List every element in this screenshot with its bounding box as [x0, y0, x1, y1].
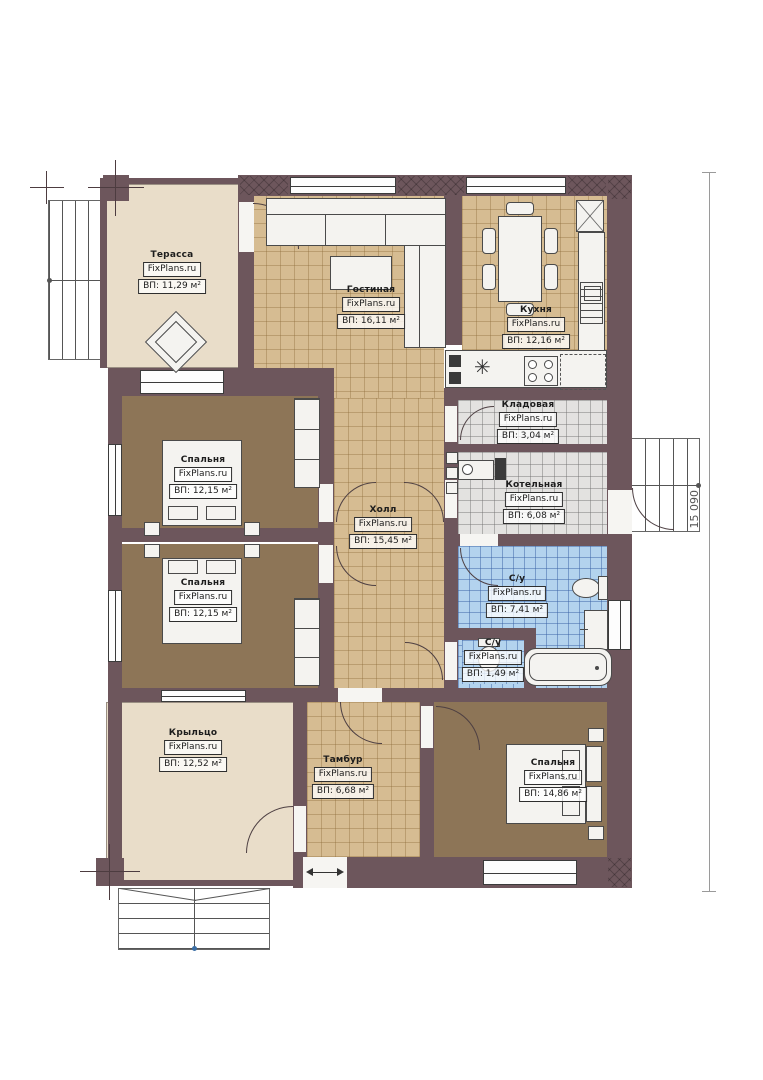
axis-marker: [109, 844, 110, 900]
room-label-porch: Крыльцо FixPlans.ru ВП: 12,52 м²: [159, 728, 227, 772]
window: [140, 370, 224, 394]
room-watermark: FixPlans.ru: [354, 517, 412, 532]
toilet-tank-icon: [598, 576, 608, 600]
nightstand-icon: [588, 728, 604, 742]
room-watermark: FixPlans.ru: [524, 770, 582, 785]
room-label-bedroom1: Спальня FixPlans.ru ВП: 12,15 м²: [169, 455, 237, 499]
sofa-icon: [266, 198, 446, 246]
room-label-kitchen: Кухня FixPlans.ru ВП: 12,16 м²: [502, 305, 570, 349]
room-name: Кладовая: [502, 400, 555, 410]
wall-corner-hatch: [608, 858, 631, 887]
room-watermark: FixPlans.ru: [143, 262, 201, 277]
stairs: [118, 888, 270, 950]
room-label-living: Гостиная FixPlans.ru ВП: 16,11 м²: [337, 285, 405, 329]
bathtub-icon: [524, 648, 612, 686]
pillow-icon: [206, 506, 236, 520]
boiler-unit-icon: [580, 282, 603, 324]
wardrobe-icon: [294, 598, 320, 686]
wall-bedrooms-right: [318, 380, 334, 690]
room-name: Терасса: [151, 250, 194, 260]
axis-marker: [103, 175, 129, 201]
gauge-icon: [462, 464, 473, 475]
nightstand-icon: [244, 544, 260, 558]
window: [161, 690, 246, 702]
window: [608, 600, 631, 650]
pillow-icon: [168, 560, 198, 574]
cabinet-icon: [449, 355, 461, 367]
room-label-wc: С/у FixPlans.ru ВП: 1,49 м²: [462, 638, 524, 682]
room-name: Кухня: [520, 305, 552, 315]
headboard-icon: [586, 786, 602, 822]
chair-icon: [506, 202, 534, 215]
electric-panel-icon: [446, 467, 458, 479]
room-label-bedroom3: Спальня FixPlans.ru ВП: 14,86 м²: [519, 758, 587, 802]
wardrobe-icon: [294, 398, 320, 488]
room-name: Котельная: [505, 480, 562, 490]
axis-marker: [96, 858, 124, 886]
cabinet-icon: [449, 372, 461, 384]
room-area: ВП: 14,86 м²: [519, 787, 587, 802]
door-opening: [608, 490, 632, 534]
room-area: ВП: 3,04 м²: [497, 429, 559, 444]
dimension-tick: [702, 172, 716, 173]
room-name: Спальня: [181, 578, 226, 588]
window: [108, 444, 122, 516]
room-watermark: FixPlans.ru: [164, 740, 222, 755]
headboard-icon: [586, 746, 602, 782]
room-label-hall: Холл FixPlans.ru ВП: 15,45 м²: [349, 505, 417, 549]
room-area: ВП: 16,11 м²: [337, 314, 405, 329]
room-watermark: FixPlans.ru: [507, 317, 565, 332]
room-watermark: FixPlans.ru: [342, 297, 400, 312]
dimension-line: [709, 172, 710, 892]
room-watermark: FixPlans.ru: [488, 586, 546, 601]
chair-icon: [482, 264, 496, 290]
window: [466, 177, 566, 194]
room-name: Холл: [369, 505, 396, 515]
room-area: ВП: 12,16 м²: [502, 334, 570, 349]
room-name: С/у: [509, 574, 525, 584]
room-name: Крыльцо: [169, 728, 217, 738]
axis-marker: [46, 171, 47, 204]
wall-pier-hatch: [568, 176, 606, 195]
electric-panel-icon: [446, 452, 458, 464]
door-opening: [338, 688, 382, 702]
wall-storage-boiler: [458, 444, 607, 452]
door-opening: [319, 545, 333, 583]
wall-porch-bottom: [106, 880, 293, 886]
chair-icon: [544, 228, 558, 254]
room-label-bath: С/у FixPlans.ru ВП: 7,41 м²: [486, 574, 548, 618]
room-area: ВП: 11,29 м²: [138, 279, 206, 294]
room-watermark: FixPlans.ru: [314, 767, 372, 782]
fridge-icon: [576, 200, 604, 232]
wall-pier-hatch: [398, 176, 464, 195]
room-watermark: FixPlans.ru: [174, 467, 232, 482]
wall-pier-hatch: [240, 176, 288, 195]
electric-panel-icon: [446, 482, 458, 494]
room-name: Спальня: [531, 758, 576, 768]
window: [290, 177, 396, 194]
wall-terrace-left: [100, 178, 107, 368]
chair-icon: [482, 228, 496, 254]
room-watermark: FixPlans.ru: [505, 492, 563, 507]
room-area: ВП: 12,15 м²: [169, 484, 237, 499]
door-opening: [294, 806, 306, 852]
door-opening: [445, 406, 457, 442]
room-name: С/у: [485, 638, 501, 648]
axis-marker: [30, 187, 64, 188]
pillow-icon: [168, 506, 198, 520]
entry-arrow: [306, 868, 344, 876]
axis-marker: [80, 871, 140, 872]
dining-table-icon: [498, 216, 542, 302]
window: [108, 590, 122, 662]
stairs: [48, 200, 102, 360]
room-area: ВП: 12,15 м²: [169, 607, 237, 622]
door-opening: [445, 642, 457, 680]
room-watermark: FixPlans.ru: [464, 650, 522, 665]
stove-burner-icon: [528, 373, 537, 382]
dimension-label: 15 090: [688, 490, 701, 529]
room-label-terrace: Терасса FixPlans.ru ВП: 11,29 м²: [138, 250, 206, 294]
floor-plan: ✳: [0, 0, 763, 1080]
room-label-storage: Кладовая FixPlans.ru ВП: 3,04 м²: [497, 400, 559, 444]
stove-burner-icon: [544, 373, 553, 382]
stove-burner-icon: [544, 360, 553, 369]
room-area: ВП: 6,08 м²: [503, 509, 565, 524]
room-name: Спальня: [181, 455, 226, 465]
room-name: Гостиная: [347, 285, 395, 295]
chair-icon: [544, 264, 558, 290]
boiler-icon: [495, 458, 506, 480]
door-opening: [319, 484, 333, 522]
room-area: ВП: 15,45 м²: [349, 534, 417, 549]
room-area: ВП: 6,68 м²: [312, 784, 374, 799]
room-area: ВП: 7,41 м²: [486, 603, 548, 618]
room-label-bedroom2: Спальня FixPlans.ru ВП: 12,15 м²: [169, 578, 237, 622]
room-label-vestibule: Тамбур FixPlans.ru ВП: 6,68 м²: [312, 755, 374, 799]
room-label-boiler: Котельная FixPlans.ru ВП: 6,08 м²: [503, 480, 565, 524]
door-opening: [421, 706, 433, 748]
door-opening: [239, 202, 254, 252]
nightstand-icon: [588, 826, 604, 840]
axis-marker: [88, 187, 144, 188]
room-area: ВП: 1,49 м²: [462, 667, 524, 682]
pillow-icon: [206, 560, 236, 574]
washbasin-icon: [584, 610, 608, 650]
nightstand-icon: [244, 522, 260, 536]
room-name: Тамбур: [323, 755, 362, 765]
upper-cabinet-dashed: [560, 354, 606, 390]
wall-corner-hatch: [608, 176, 631, 199]
nightstand-icon: [144, 544, 160, 558]
window: [483, 860, 577, 885]
dimension-tick: [702, 891, 716, 892]
room-watermark: FixPlans.ru: [499, 412, 557, 427]
door-opening: [460, 534, 498, 546]
stove-burner-icon: [528, 360, 537, 369]
room-area: ВП: 12,52 м²: [159, 757, 227, 772]
room-watermark: FixPlans.ru: [174, 590, 232, 605]
toilet-icon: [572, 578, 600, 598]
nightstand-icon: [144, 522, 160, 536]
axis-marker: [115, 160, 116, 216]
sink-icon: ✳: [474, 355, 491, 379]
wall-living-kitchen: [444, 175, 462, 345]
